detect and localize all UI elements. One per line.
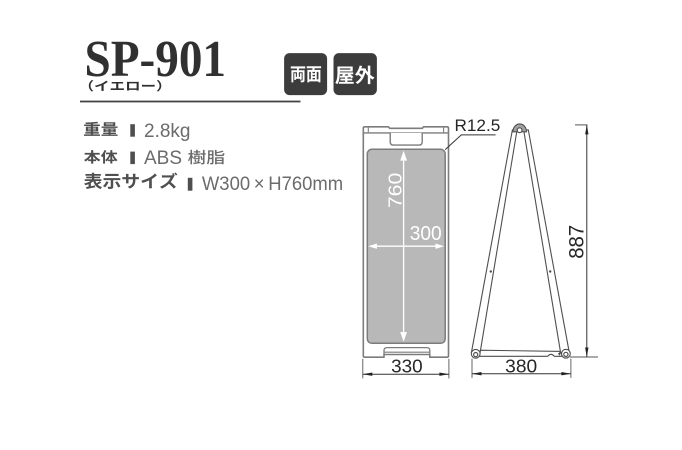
- svg-text:380: 380: [505, 356, 537, 377]
- svg-text:ABS: ABS: [144, 148, 182, 169]
- svg-text:300: 300: [410, 223, 442, 245]
- svg-text:W300 × H760mm: W300 × H760mm: [202, 174, 343, 195]
- svg-text:330: 330: [391, 356, 423, 377]
- svg-text:SP-901: SP-901: [85, 31, 227, 88]
- svg-text:887: 887: [565, 225, 588, 259]
- svg-text:2.8kg: 2.8kg: [144, 121, 190, 142]
- svg-text:760: 760: [386, 173, 406, 209]
- svg-text:R12.5: R12.5: [455, 117, 501, 135]
